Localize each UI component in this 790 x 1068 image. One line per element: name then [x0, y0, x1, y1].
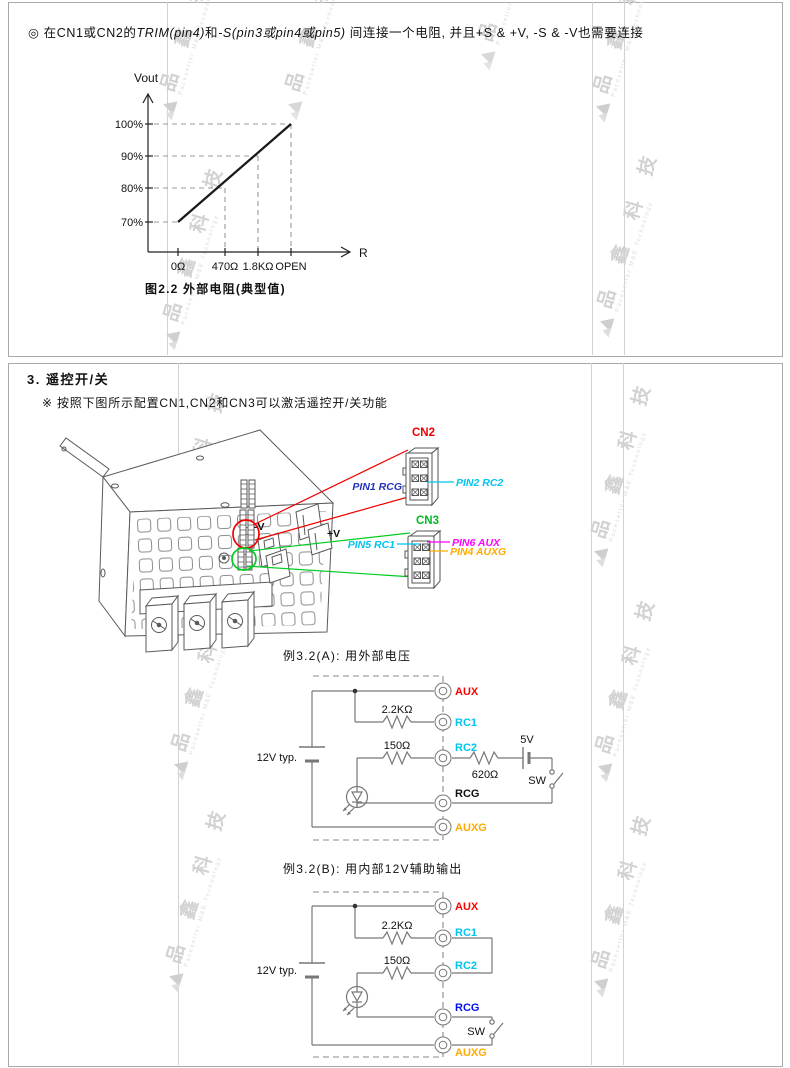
- terminal-rcg-label: RCG: [455, 788, 479, 800]
- switch-label: SW: [467, 1026, 485, 1038]
- psu-flap: [60, 438, 109, 477]
- circuit-example-a: 例3.2(A): 用外部电压: [257, 648, 563, 840]
- section3-note: ※ 按照下图所示配置CN1,CN2和CN3可以激活遥控开/关功能: [42, 394, 388, 411]
- battery-5v-label: 5V: [520, 734, 534, 746]
- section3-heading: 3. 遥控开/关: [27, 369, 109, 388]
- psu-terminal-blocks: [140, 582, 272, 652]
- resistor-2k2-label: 2.2KΩ: [382, 704, 413, 716]
- terminal-aux-label: AUX: [455, 686, 479, 698]
- psu-top-face: [103, 430, 333, 512]
- vout-vs-r-chart: Vout R 100% 90% 80% 70% 0Ω 470Ω 1.8KΩ OP…: [100, 60, 400, 310]
- junction-dot: [353, 904, 358, 909]
- cn3-connector: CN3 PIN5 RC1 PIN6 AUX PIN4 AUXG: [348, 515, 506, 588]
- pin5-rc1-label: PIN5 RC1: [348, 539, 395, 551]
- y-tick: 100%: [115, 119, 143, 131]
- x-axis-label: R: [359, 246, 368, 260]
- chart-caption: 图2.2 外部电阻(典型值): [145, 281, 286, 296]
- pin2-rc2-label: PIN2 RC2: [456, 477, 503, 489]
- cn2-label: CN2: [412, 427, 435, 439]
- x-tick: 0Ω: [171, 261, 185, 273]
- example-a-title: 例3.2(A): 用外部电压: [283, 648, 411, 663]
- terminal-rc2-label: RC2: [455, 960, 477, 972]
- note-bullet: ◎: [28, 26, 40, 40]
- chart-data-line: [178, 124, 291, 222]
- x-tick: OPEN: [275, 261, 306, 273]
- terminal-rcg-label: RCG: [455, 1002, 479, 1014]
- example-b-title: 例3.2(B): 用内部12V辅助输出: [283, 861, 463, 876]
- terminal-auxg-label: AUXG: [455, 1047, 487, 1059]
- resistor-2k2-label: 2.2KΩ: [382, 920, 413, 932]
- psu-drawing: -V +V: [60, 430, 340, 652]
- psu-onboard-connectors: [238, 480, 255, 570]
- chart-axes: [143, 94, 350, 257]
- source-12v-label: 12V typ.: [257, 965, 297, 977]
- trim-note: ◎ 在CN1或CN2的TRIM(pin4)和-S(pin3或pin4或pin5)…: [28, 22, 644, 41]
- pin1-rcg-label: PIN1 RCG: [352, 481, 402, 493]
- terminal-rc1-label: RC1: [455, 717, 477, 729]
- y-tick: 80%: [121, 183, 143, 195]
- x-tick: 1.8KΩ: [243, 261, 274, 273]
- x-tick: 470Ω: [212, 261, 239, 273]
- terminal-rc1-label: RC1: [455, 927, 477, 939]
- y-tick: 90%: [121, 151, 143, 163]
- pin4-auxg-label: PIN4 AUXG: [450, 546, 506, 558]
- circuit-a-wires: [299, 691, 563, 827]
- terminal-rc2-label: RC2: [455, 742, 477, 754]
- terminal-auxg-label: AUXG: [455, 822, 487, 834]
- y-axis-label: Vout: [134, 71, 159, 85]
- y-tick: 70%: [121, 217, 143, 229]
- resistor-150-label: 150Ω: [384, 740, 411, 752]
- switch-label: SW: [528, 775, 546, 787]
- terminal-aux-label: AUX: [455, 901, 479, 913]
- resistor-150-label: 150Ω: [384, 955, 411, 967]
- source-12v-label: 12V typ.: [257, 752, 297, 764]
- resistor-620-label: 620Ω: [472, 769, 499, 781]
- junction-dot: [353, 689, 358, 694]
- remote-onoff-diagram: -V +V CN2 PIN1 RCG PIN2 RC2 CN3 PIN5 RC1…: [50, 420, 580, 1065]
- circuit-a-terminals: [435, 683, 451, 835]
- psu-boundary-dashed: [313, 892, 443, 1057]
- circuit-example-b: 例3.2(B): 用内部12V辅助输出 2: [257, 861, 503, 1059]
- cn3-label: CN3: [416, 515, 439, 527]
- circuit-b-terminals: [435, 898, 451, 1053]
- pos-v-label: +V: [327, 528, 340, 540]
